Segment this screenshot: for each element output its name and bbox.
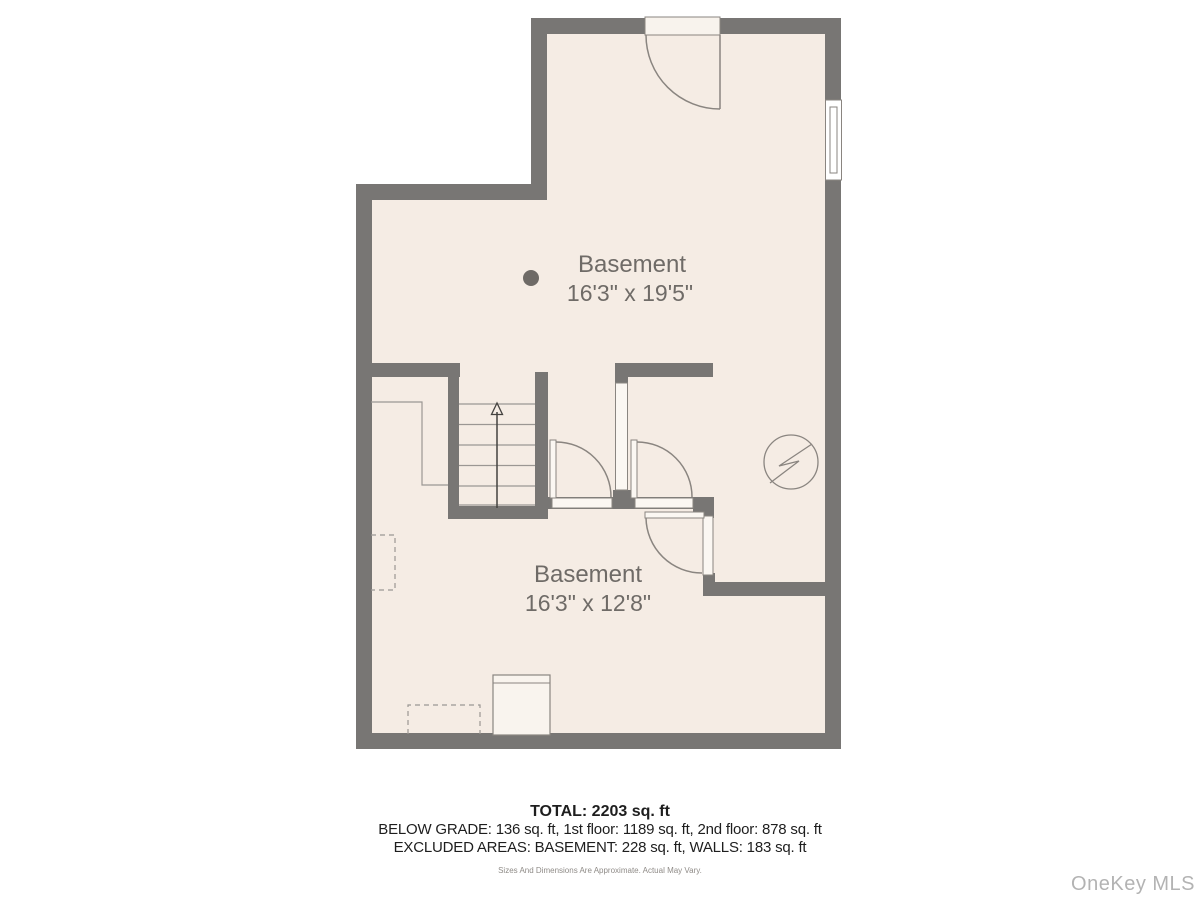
room-1-name: Basement [578,251,686,278]
watermark: OneKey MLS [1071,873,1195,896]
room-marker-dot [523,270,539,286]
room-1-dimensions: 16'3" x 19'5" [567,280,693,306]
below-grade-text: BELOW GRADE: 136 sq. ft, 1st floor: 1189… [0,821,1200,839]
wall-lower-right-horizontal [703,582,835,596]
floor-plan: Basement 16'3" x 19'5" Basement 16'3" x … [0,0,1200,900]
room-2-dimensions: 16'3" x 12'8" [525,590,651,616]
disclaimer-text: Sizes And Dimensions Are Approximate. Ac… [0,866,1200,876]
room-2-name: Basement [534,561,642,588]
excluded-areas-text: EXCLUDED AREAS: BASEMENT: 228 sq. ft, WA… [0,839,1200,857]
chase-partition [616,383,628,490]
wall-stub-between-doors [613,490,632,509]
wall-left-of-stairs-horizontal [364,363,460,377]
window-icon [826,100,842,180]
wall-stairs-bottom [448,506,548,519]
appliance-box [493,675,550,735]
floor-outline [364,26,833,741]
wall-stairs-right [535,372,548,512]
wall-stairs-left [448,363,459,513]
wall-upper-room-divider [615,363,713,377]
area-summary: TOTAL: 2203 sq. ft BELOW GRADE: 136 sq. … [0,803,1200,876]
total-area-text: TOTAL: 2203 sq. ft [0,803,1200,821]
